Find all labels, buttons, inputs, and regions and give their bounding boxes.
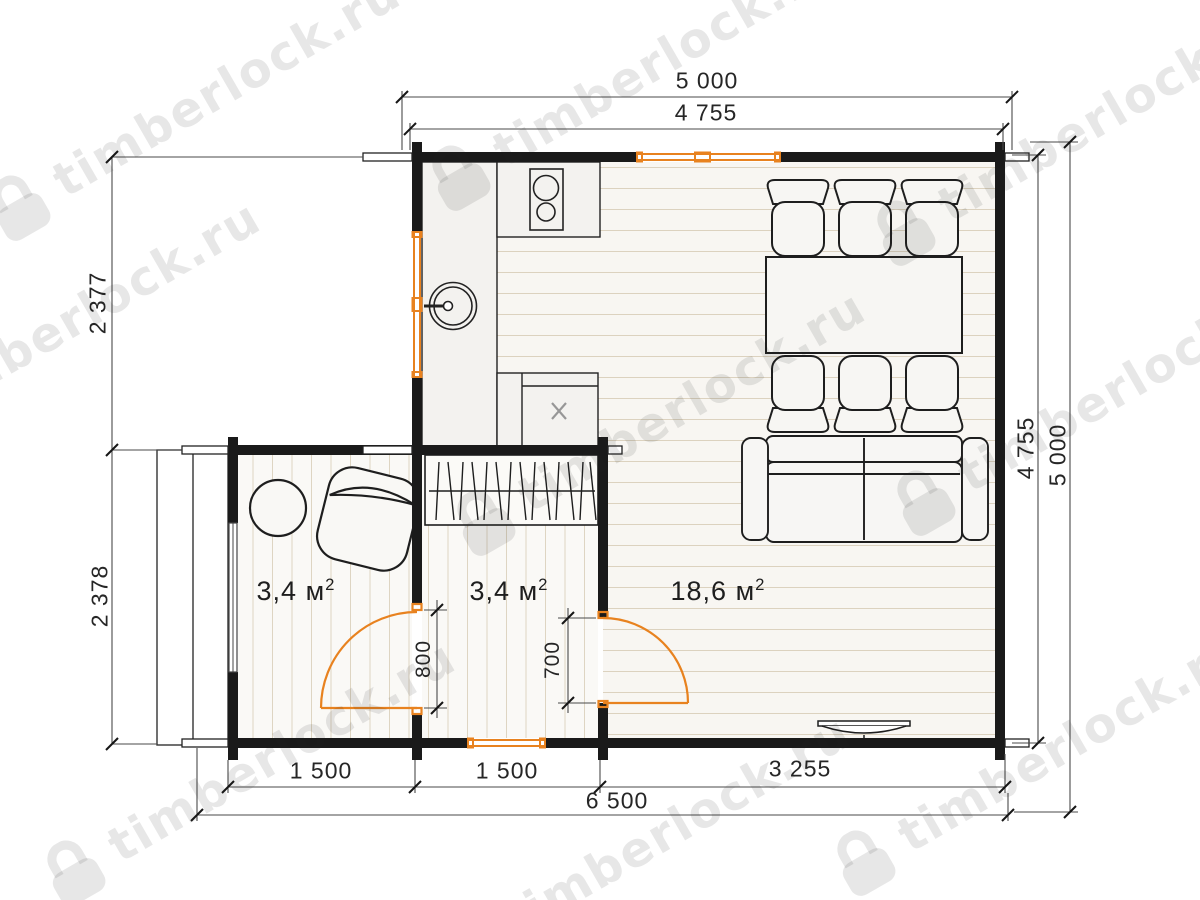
porch-steps xyxy=(157,450,228,745)
floor-plan-page: 5 000 4 755 2 377 2 378 4 755 5 000 1 50… xyxy=(0,0,1200,900)
area-sup: 2 xyxy=(325,575,335,594)
chair xyxy=(902,356,963,432)
area-unit: м xyxy=(510,576,538,606)
entry-opening xyxy=(229,523,237,672)
coat-rack xyxy=(425,455,598,525)
window-left xyxy=(413,232,422,377)
dim-right-outer: 5 000 xyxy=(1045,424,1072,487)
dim-left-lower: 2 378 xyxy=(87,565,114,628)
area-unit: м xyxy=(727,576,755,606)
chair xyxy=(768,180,829,256)
chair xyxy=(835,356,896,432)
dining-table xyxy=(766,257,962,353)
dim-bottom-seg1: 1 500 xyxy=(290,758,353,785)
chair xyxy=(835,180,896,256)
area-value: 3,4 xyxy=(257,576,298,606)
room-area-living: 18,6 м2 xyxy=(671,575,766,607)
dim-bottom-seg3: 3 255 xyxy=(769,756,832,783)
chair xyxy=(768,356,829,432)
dim-bottom-seg2: 1 500 xyxy=(476,758,539,785)
dim-top-inner: 4 755 xyxy=(675,100,738,127)
dim-bottom-total: 6 500 xyxy=(586,788,649,815)
dim-left-upper: 2 377 xyxy=(85,272,112,335)
stove-icon xyxy=(530,169,563,230)
dim-top-total: 5 000 xyxy=(676,68,739,95)
area-sup: 2 xyxy=(538,575,548,594)
room-area-hallway: 3,4 м2 xyxy=(470,575,549,607)
dim-door-right: 700 xyxy=(541,641,565,679)
sofa xyxy=(742,436,988,542)
area-unit: м xyxy=(297,576,325,606)
room-area-lounge: 3,4 м2 xyxy=(257,575,336,607)
area-value: 18,6 xyxy=(671,576,728,606)
window-bottom xyxy=(468,739,545,748)
side-table xyxy=(250,480,306,536)
dim-door-left: 800 xyxy=(412,640,436,678)
dining-set xyxy=(766,180,962,432)
area-sup: 2 xyxy=(755,575,765,594)
area-value: 3,4 xyxy=(470,576,511,606)
chair xyxy=(902,180,963,256)
window-top xyxy=(637,153,780,162)
dim-right-inner: 4 755 xyxy=(1013,417,1040,480)
